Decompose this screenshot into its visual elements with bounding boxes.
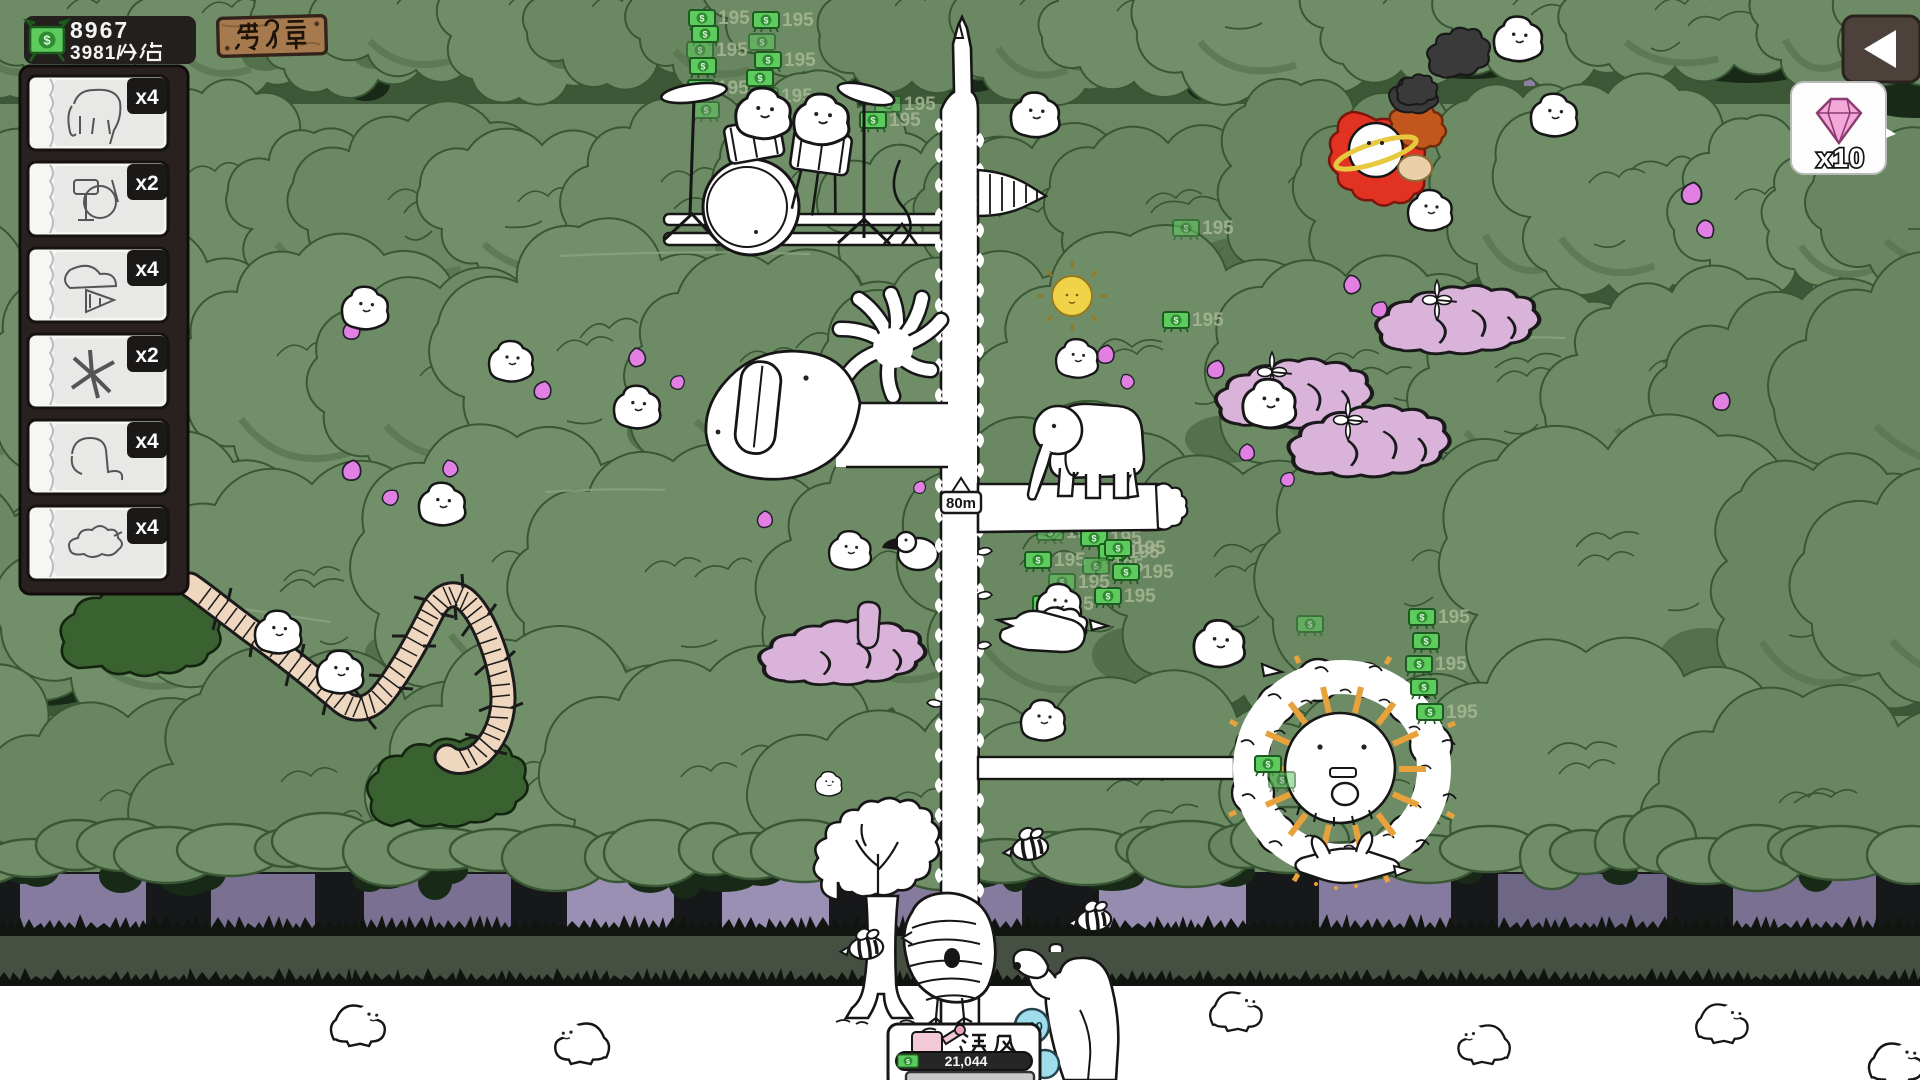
svg-text:195: 195: [1202, 218, 1234, 239]
svg-text:$: $: [1416, 660, 1421, 670]
svg-text:$: $: [700, 62, 705, 72]
svg-text:$: $: [759, 38, 764, 48]
svg-text:$: $: [870, 116, 875, 126]
svg-text:$: $: [1091, 534, 1096, 544]
svg-text:195: 195: [1438, 607, 1470, 628]
svg-text:3981/: 3981/: [70, 43, 123, 64]
svg-text:195: 195: [716, 40, 748, 61]
svg-text:195: 195: [1078, 572, 1110, 593]
svg-text:$: $: [906, 1057, 910, 1066]
svg-text:$: $: [703, 106, 708, 116]
svg-text:$: $: [1105, 592, 1110, 602]
svg-text:x10: x10: [1817, 143, 1865, 173]
svg-text:$: $: [1265, 760, 1270, 770]
svg-text:x4: x4: [135, 516, 159, 539]
svg-text:195: 195: [1134, 538, 1166, 559]
svg-text:$: $: [1183, 224, 1188, 234]
svg-text:$: $: [1423, 637, 1428, 647]
svg-text:$: $: [1279, 776, 1284, 786]
svg-text:x2: x2: [135, 172, 158, 195]
svg-text:195: 195: [718, 8, 750, 29]
svg-text:$: $: [1093, 562, 1098, 572]
svg-text:$: $: [1123, 568, 1128, 578]
svg-text:$: $: [1173, 316, 1178, 326]
svg-text:$: $: [699, 14, 704, 24]
svg-text:195: 195: [889, 110, 921, 131]
svg-text:$: $: [702, 30, 707, 40]
svg-text:$: $: [43, 33, 51, 48]
svg-text:195: 195: [1446, 702, 1478, 723]
svg-text:$: $: [1307, 620, 1312, 630]
svg-text:x4: x4: [135, 258, 159, 281]
svg-text:195: 195: [1435, 654, 1467, 675]
svg-text:x2: x2: [135, 344, 158, 367]
svg-text:$: $: [1419, 613, 1424, 623]
svg-text:$: $: [1115, 544, 1120, 554]
svg-text:$: $: [1421, 683, 1426, 693]
svg-text:x4: x4: [135, 430, 159, 453]
svg-text:195: 195: [1142, 562, 1174, 583]
svg-text:x4: x4: [135, 86, 159, 109]
svg-text:$: $: [1035, 556, 1040, 566]
svg-text:$: $: [757, 74, 762, 84]
svg-text:80m: 80m: [946, 495, 976, 512]
svg-text:195: 195: [784, 50, 816, 71]
svg-text:195: 195: [782, 10, 814, 31]
svg-text:195: 195: [1192, 310, 1224, 331]
svg-text:195: 195: [1124, 586, 1156, 607]
svg-text:$: $: [763, 16, 768, 26]
svg-text:21,044: 21,044: [945, 1053, 988, 1069]
svg-text:195: 195: [1054, 550, 1086, 571]
svg-text:$: $: [697, 46, 702, 56]
svg-text:8967: 8967: [70, 17, 129, 43]
svg-text:$: $: [765, 56, 770, 66]
svg-text:$: $: [1427, 708, 1432, 718]
